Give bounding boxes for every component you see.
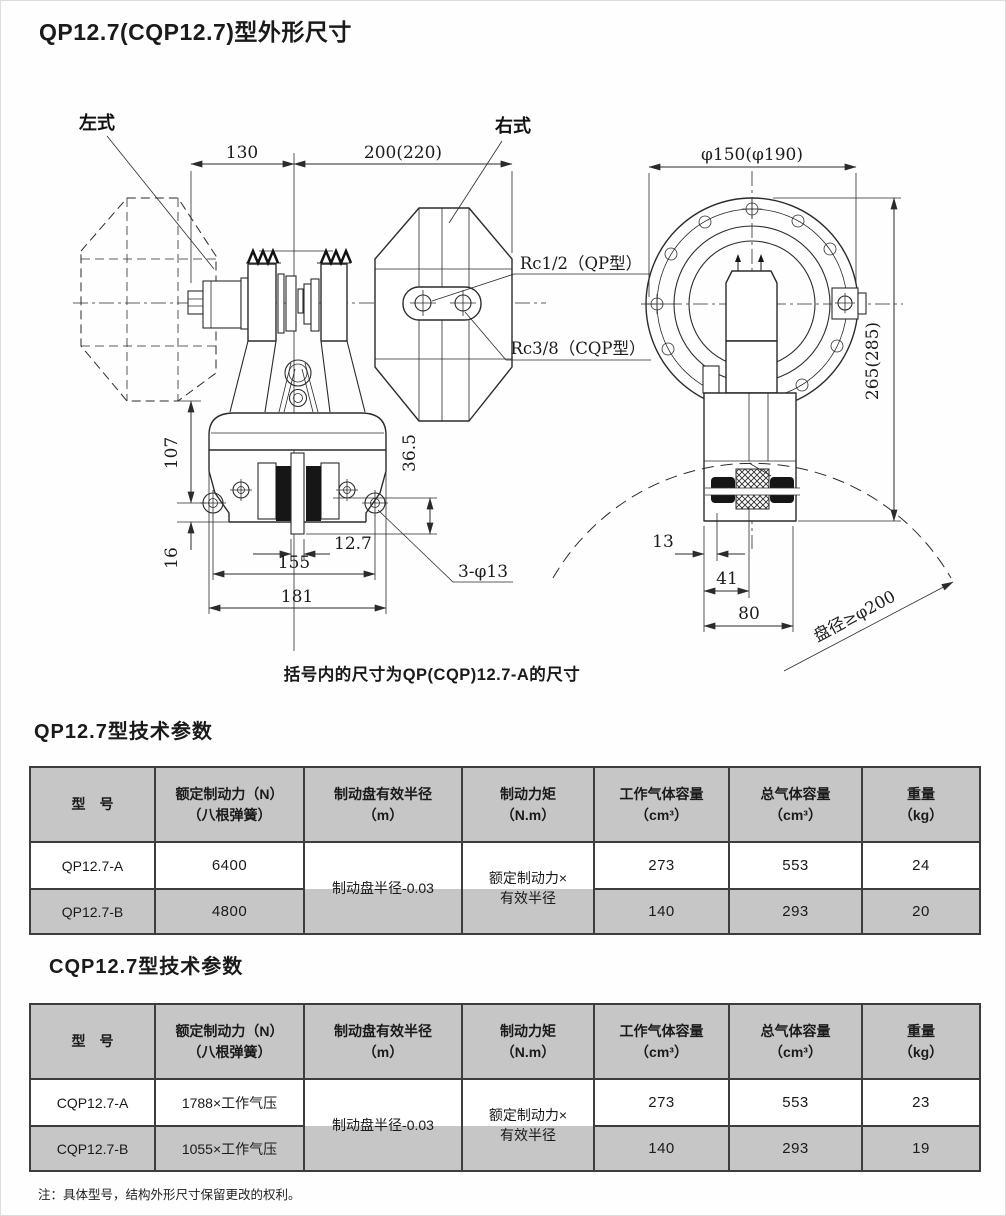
dim-13: 13 [652, 532, 674, 552]
col-model: 型 号 [30, 1004, 155, 1079]
cell-work-vol: 273 [594, 1079, 729, 1126]
right-type-body [375, 208, 512, 421]
outline-drawing: 左式 [1, 1, 1006, 701]
brake-pad [306, 466, 321, 521]
cell-torque-note: 额定制动力×有效半径 [462, 842, 594, 934]
cell-force: 6400 [155, 842, 304, 889]
right-view: 盘径≥φ200 φ150(φ190) 265(285) 13 41 80 [553, 145, 953, 671]
dim-3-phi13: 3-φ13 [458, 562, 508, 582]
dim-flange: φ150(φ190) [701, 145, 803, 165]
cell-model: CQP12.7-A [30, 1079, 155, 1126]
brake-pad [276, 466, 291, 521]
cell-total-vol: 553 [729, 842, 862, 889]
cell-torque-note: 额定制动力×有效半径 [462, 1079, 594, 1171]
dim-36-5: 36.5 [400, 434, 420, 472]
cell-weight: 20 [862, 889, 980, 934]
qp-params-table: 型 号 额定制动力（N）（八根弹簧） 制动盘有效半径（m） 制动力矩（N.m） … [29, 766, 981, 935]
dim-155: 155 [278, 553, 310, 573]
table2-title: CQP12.7型技术参数 [49, 950, 243, 979]
cell-model: QP12.7-A [30, 842, 155, 889]
dim-181: 181 [281, 587, 313, 607]
col-model: 型 号 [30, 767, 155, 842]
cell-total-vol: 293 [729, 889, 862, 934]
disc-diameter-label: 盘径≥φ200 [810, 587, 898, 646]
cell-weight: 23 [862, 1079, 980, 1126]
datasheet-page: QP12.7(CQP12.7)型外形尺寸 左式 [0, 0, 1006, 1216]
col-total-vol: 总气体容量（cm³） [729, 1004, 862, 1079]
dim-200-220: 200(220) [364, 143, 442, 163]
cqp-params-table: 型 号 额定制动力（N）（八根弹簧） 制动盘有效半径（m） 制动力矩（N.m） … [29, 1003, 981, 1172]
col-work-vol: 工作气体容量（cm³） [594, 1004, 729, 1079]
cell-model: CQP12.7-B [30, 1126, 155, 1171]
dim-265-285: 265(285) [863, 322, 883, 400]
dim-12-7: 12.7 [334, 534, 372, 554]
cell-force: 1055×工作气压 [155, 1126, 304, 1171]
center-cartridge [703, 254, 800, 521]
col-torque: 制动力矩（N.m） [462, 1004, 594, 1079]
col-radius: 制动盘有效半径（m） [304, 767, 462, 842]
table-row: CQP12.7-A 1788×工作气压 制动盘半径-0.03 额定制动力×有效半… [30, 1079, 980, 1126]
table-header-row: 型 号 额定制动力（N）（八根弹簧） 制动盘有效半径（m） 制动力矩（N.m） … [30, 1004, 980, 1079]
disc-slot [291, 453, 304, 534]
spring-icon [321, 251, 351, 263]
cell-total-vol: 553 [729, 1079, 862, 1126]
col-force: 额定制动力（N）（八根弹簧） [155, 767, 304, 842]
dim-41: 41 [716, 569, 738, 589]
dim-130: 130 [226, 143, 258, 163]
footnote: 注：具体型号，结构外形尺寸保留更改的权利。 [38, 1184, 301, 1203]
col-radius: 制动盘有效半径（m） [304, 1004, 462, 1079]
table-header-row: 型 号 额定制动力（N）（八根弹簧） 制动盘有效半径（m） 制动力矩（N.m） … [30, 767, 980, 842]
col-weight: 重量（kg） [862, 767, 980, 842]
cell-model: QP12.7-B [30, 889, 155, 934]
caliper-housing [200, 413, 388, 534]
rc-qp-label: Rc1/2（QP型） [520, 254, 642, 273]
cell-work-vol: 140 [594, 1126, 729, 1171]
left-view: 左式 [73, 112, 651, 651]
dim-107: 107 [162, 437, 182, 469]
col-total-vol: 总气体容量（cm³） [729, 767, 862, 842]
cell-force: 1788×工作气压 [155, 1079, 304, 1126]
cell-work-vol: 273 [594, 842, 729, 889]
cell-work-vol: 140 [594, 889, 729, 934]
col-force: 额定制动力（N）（八根弹簧） [155, 1004, 304, 1079]
cell-radius-note: 制动盘半径-0.03 [304, 842, 462, 934]
table-row: QP12.7-A 6400 制动盘半径-0.03 额定制动力×有效半径 273 … [30, 842, 980, 889]
right-type-label: 右式 [495, 115, 531, 136]
spring-icon [248, 251, 278, 263]
drawing-caption: 括号内的尺寸为QP(CQP)12.7-A的尺寸 [1, 661, 863, 685]
cell-radius-note: 制动盘半径-0.03 [304, 1079, 462, 1171]
col-work-vol: 工作气体容量（cm³） [594, 767, 729, 842]
dim-80: 80 [738, 604, 760, 624]
cell-weight: 24 [862, 842, 980, 889]
cell-force: 4800 [155, 889, 304, 934]
left-type-label: 左式 [79, 112, 115, 133]
cell-total-vol: 293 [729, 1126, 862, 1171]
cell-weight: 19 [862, 1126, 980, 1171]
rc-cqp-label: Rc3/8（CQP型） [511, 339, 646, 358]
brake-arms [230, 251, 365, 412]
col-torque: 制动力矩（N.m） [462, 767, 594, 842]
table1-title: QP12.7型技术参数 [34, 715, 213, 744]
col-weight: 重量（kg） [862, 1004, 980, 1079]
dim-16: 16 [162, 547, 182, 569]
